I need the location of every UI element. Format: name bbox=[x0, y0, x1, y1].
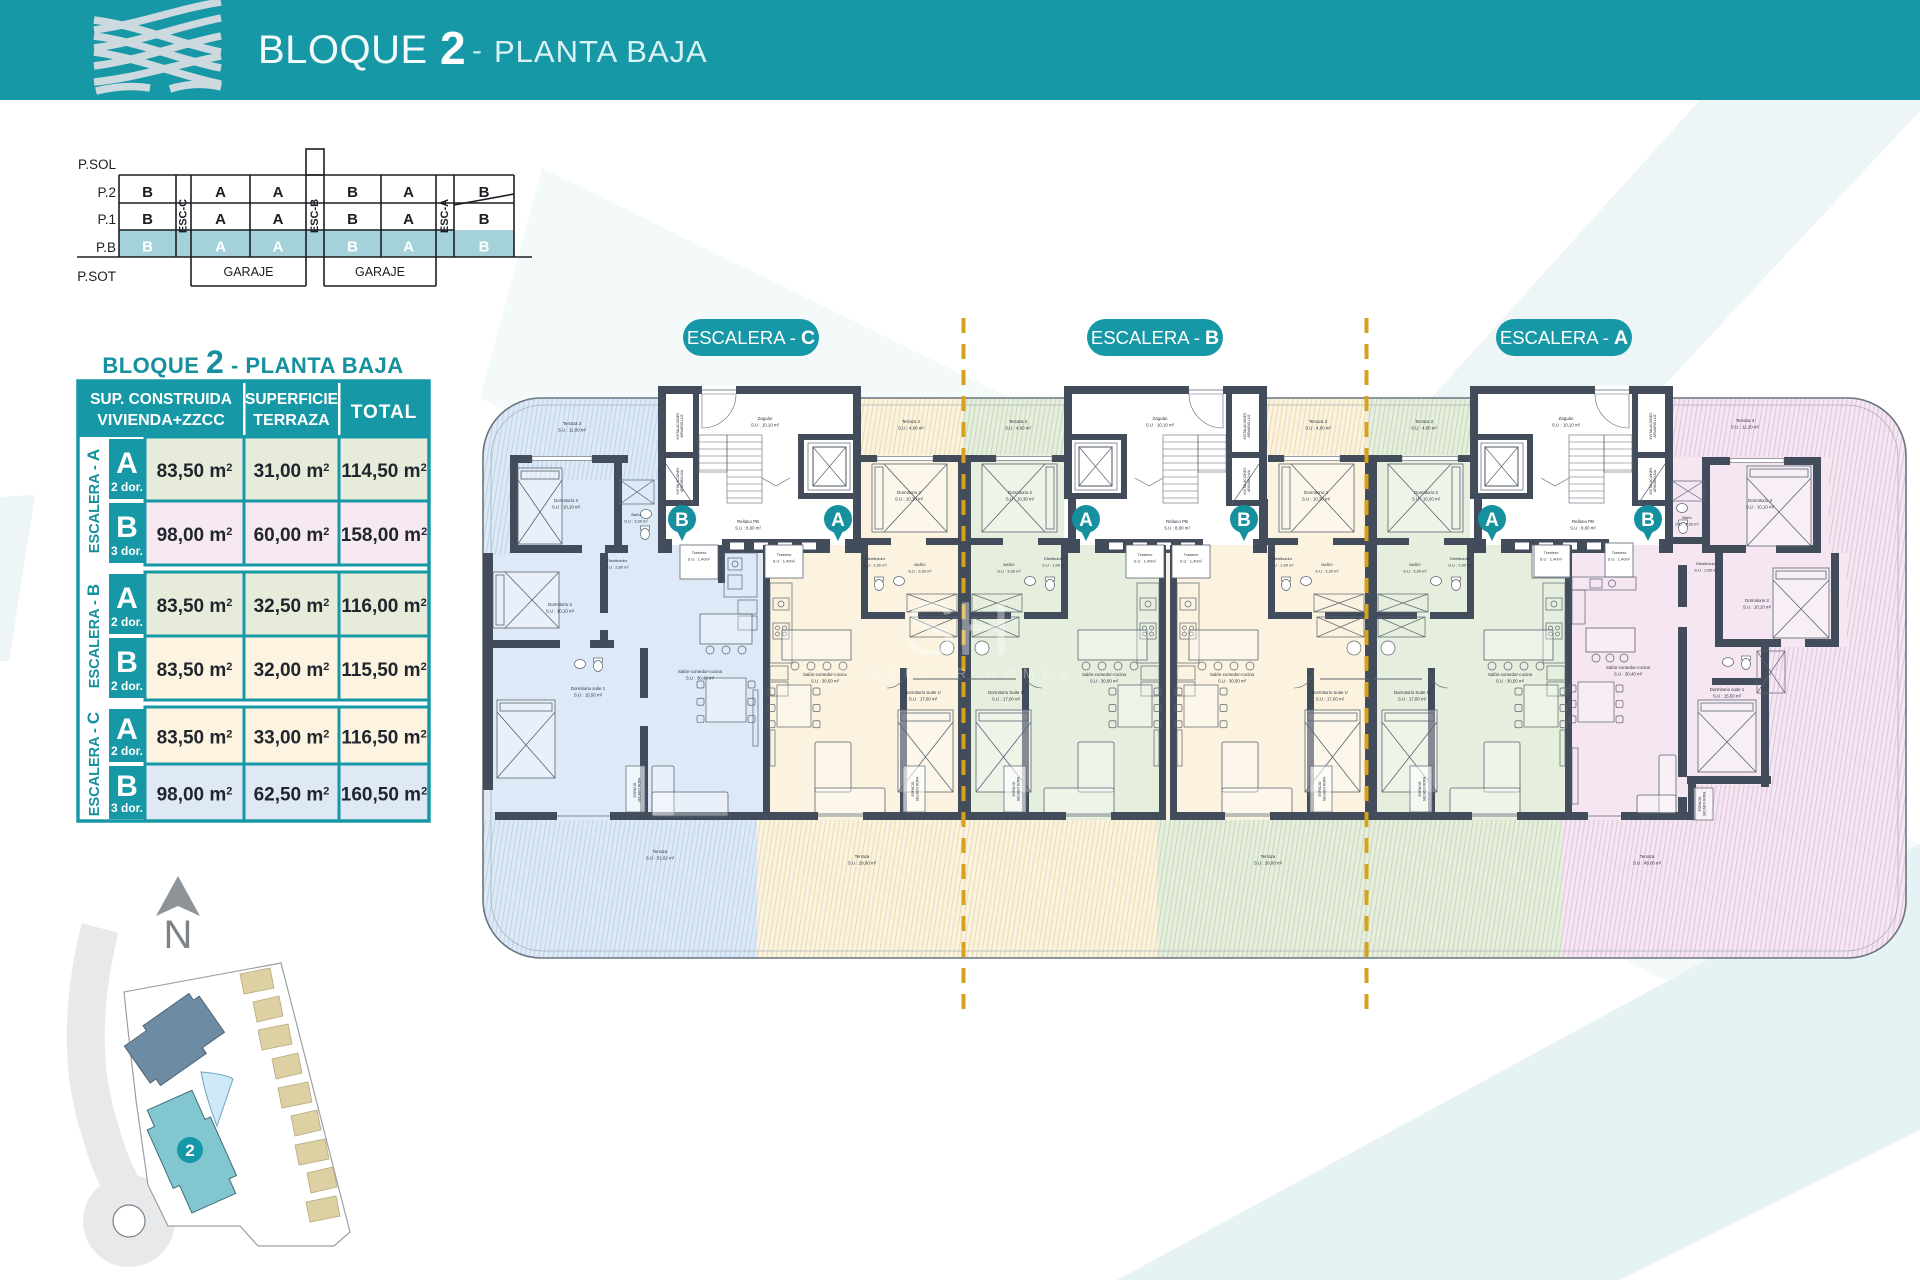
svg-text:Terraza 3: Terraza 3 bbox=[1736, 418, 1755, 423]
svg-text:S.U : 3,30 m²: S.U : 3,30 m² bbox=[1675, 522, 1699, 527]
svg-text:Terraza: Terraza bbox=[1640, 854, 1655, 859]
svg-text:A: A bbox=[273, 184, 284, 201]
svg-text:P.B: P.B bbox=[96, 240, 116, 255]
svg-text:Distribuidor: Distribuidor bbox=[1450, 556, 1471, 561]
svg-text:SECADO ROPA: SECADO ROPA bbox=[638, 777, 642, 802]
svg-text:SECADO ROPA: SECADO ROPA bbox=[1703, 791, 1707, 816]
svg-text:2 dor.: 2 dor. bbox=[111, 480, 143, 494]
svg-text:S.U : 3,30 m²: S.U : 3,30 m² bbox=[624, 519, 648, 524]
svg-text:2 dor.: 2 dor. bbox=[111, 615, 143, 629]
svg-text:Zaguán: Zaguán bbox=[758, 416, 773, 421]
svg-text:Dormitorio 2: Dormitorio 2 bbox=[1008, 490, 1032, 495]
svg-text:S.U : 17,00 m²: S.U : 17,00 m² bbox=[909, 697, 938, 702]
svg-text:S.U : 1,40m²: S.U : 1,40m² bbox=[1134, 559, 1157, 564]
svg-text:P.SOT: P.SOT bbox=[77, 269, 116, 284]
svg-text:B: B bbox=[142, 211, 153, 228]
svg-text:S.U : 2,80 m²: S.U : 2,80 m² bbox=[605, 565, 629, 570]
svg-text:Dormitorio 2: Dormitorio 2 bbox=[548, 602, 572, 607]
svg-text:Dormitorio Suite 1ᵗ: Dormitorio Suite 1ᵗ bbox=[905, 690, 941, 695]
svg-text:A: A bbox=[116, 447, 138, 480]
svg-text:B: B bbox=[142, 184, 153, 201]
svg-text:ESCALERA - A: ESCALERA - A bbox=[1500, 327, 1628, 349]
svg-text:S.U : 10,10 m²: S.U : 10,10 m² bbox=[546, 609, 575, 614]
svg-text:SH: SH bbox=[905, 587, 1011, 672]
svg-text:S.U : 10,10 m²: S.U : 10,10 m² bbox=[1146, 423, 1175, 428]
svg-text:3 dor.: 3 dor. bbox=[111, 544, 143, 558]
svg-text:33,00 m2: 33,00 m2 bbox=[254, 728, 330, 749]
svg-text:S.U : 8,00 m²: S.U : 8,00 m² bbox=[1570, 526, 1596, 531]
svg-text:S.U : 3,30 m²: S.U : 3,30 m² bbox=[1403, 569, 1427, 574]
svg-text:VIVIENDA+ZZCC: VIVIENDA+ZZCC bbox=[97, 412, 225, 429]
svg-text:ESCALERA - B: ESCALERA - B bbox=[1091, 327, 1219, 349]
svg-text:ESC-A: ESC-A bbox=[439, 199, 451, 233]
svg-text:Salón-comedor-cocina: Salón-comedor-cocina bbox=[1606, 665, 1650, 670]
svg-text:ARMARIO A/A: ARMARIO A/A bbox=[680, 469, 684, 492]
svg-text:SUPERFICIE: SUPERFICIE bbox=[245, 391, 338, 408]
svg-text:Dormitorio 2: Dormitorio 2 bbox=[1304, 490, 1328, 495]
svg-text:S.U : 30,50 m²: S.U : 30,50 m² bbox=[1218, 679, 1247, 684]
svg-text:32,50 m2: 32,50 m2 bbox=[254, 596, 330, 617]
svg-text:SINGULAR HOMES: SINGULAR HOMES bbox=[839, 665, 1078, 681]
svg-text:P.1: P.1 bbox=[97, 212, 116, 227]
svg-text:114,50 m2: 114,50 m2 bbox=[341, 461, 426, 482]
svg-text:S.U : 10,10 m²: S.U : 10,10 m² bbox=[552, 505, 581, 510]
svg-text:ESC-C: ESC-C bbox=[177, 199, 189, 233]
svg-text:S.U : 10,10 m²: S.U : 10,10 m² bbox=[1552, 423, 1581, 428]
svg-text:ESCALERA - B: ESCALERA - B bbox=[84, 584, 103, 688]
svg-text:A: A bbox=[116, 582, 138, 615]
svg-text:Dormitorio 3: Dormitorio 3 bbox=[554, 498, 578, 503]
svg-text:Distribuidor: Distribuidor bbox=[1696, 561, 1717, 566]
svg-text:ARMARIO A/A: ARMARIO A/A bbox=[1653, 469, 1657, 492]
svg-text:115,50 m2: 115,50 m2 bbox=[341, 660, 426, 681]
svg-text:ESPACIO: ESPACIO bbox=[911, 781, 915, 796]
svg-text:Terraza: Terraza bbox=[653, 849, 668, 854]
svg-text:S.U : 4,00 m²: S.U : 4,00 m² bbox=[1005, 426, 1031, 431]
svg-text:S.U : 10,10 m²: S.U : 10,10 m² bbox=[751, 423, 780, 428]
svg-text:S.U : 1,40m²: S.U : 1,40m² bbox=[773, 559, 796, 564]
svg-text:S.U : 10,10 m²: S.U : 10,10 m² bbox=[1746, 505, 1775, 510]
svg-text:S.U : 3,30 m²: S.U : 3,30 m² bbox=[1315, 569, 1339, 574]
svg-text:S.U : 1,90 m²: S.U : 1,90 m² bbox=[863, 563, 887, 568]
svg-text:S.U : 28,00 m²: S.U : 28,00 m² bbox=[1254, 861, 1283, 866]
svg-text:S.U : 3,30 m²: S.U : 3,30 m² bbox=[908, 569, 932, 574]
svg-text:S.U : 2,60 m²: S.U : 2,60 m² bbox=[1694, 568, 1718, 573]
svg-text:Terraza 2: Terraza 2 bbox=[1309, 419, 1328, 424]
svg-text:Salón-comedor-cocina: Salón-comedor-cocina bbox=[1082, 672, 1126, 677]
svg-text:B: B bbox=[142, 239, 153, 256]
svg-text:S.U : 1,40m²: S.U : 1,40m² bbox=[1180, 559, 1203, 564]
svg-text:S.U : 11,20 m²: S.U : 11,20 m² bbox=[1731, 425, 1760, 430]
svg-text:B: B bbox=[1641, 510, 1655, 531]
svg-text:A: A bbox=[273, 239, 284, 256]
svg-text:S.U : 29,00 m²: S.U : 29,00 m² bbox=[848, 861, 877, 866]
svg-text:Terraza: Terraza bbox=[855, 854, 870, 859]
svg-text:Dormitorio 2: Dormitorio 2 bbox=[897, 490, 921, 495]
svg-text:2: 2 bbox=[185, 1141, 194, 1160]
svg-text:ESPACIO: ESPACIO bbox=[1698, 796, 1702, 811]
svg-text:83,50 m2: 83,50 m2 bbox=[157, 596, 233, 617]
svg-text:-: - bbox=[472, 34, 482, 67]
svg-text:B: B bbox=[116, 511, 138, 544]
svg-text:ESPACIO: ESPACIO bbox=[1318, 781, 1322, 796]
svg-text:A: A bbox=[403, 184, 414, 201]
svg-text:Terraza 2: Terraza 2 bbox=[1415, 419, 1434, 424]
svg-text:Distribuidor: Distribuidor bbox=[1044, 556, 1065, 561]
svg-text:S.U : 30,40 m²: S.U : 30,40 m² bbox=[1614, 672, 1643, 677]
svg-text:A: A bbox=[403, 211, 414, 228]
svg-text:S.U : 30,50 m²: S.U : 30,50 m² bbox=[1496, 679, 1525, 684]
svg-text:Trastero: Trastero bbox=[1544, 550, 1560, 555]
svg-text:S.U : 49,00 m²: S.U : 49,00 m² bbox=[1633, 861, 1662, 866]
svg-text:ESCALERA - A: ESCALERA - A bbox=[84, 449, 103, 553]
svg-text:S.U : 1,40m²: S.U : 1,40m² bbox=[1540, 557, 1563, 562]
svg-text:S.U : 4,00 m²: S.U : 4,00 m² bbox=[898, 426, 924, 431]
svg-text:S.U : 8,00 m²: S.U : 8,00 m² bbox=[735, 526, 761, 531]
svg-text:ARMARIO A/A: ARMARIO A/A bbox=[1247, 469, 1251, 492]
svg-text:B: B bbox=[675, 510, 689, 531]
svg-text:A: A bbox=[1485, 510, 1499, 531]
svg-text:Salón-comedor-cocina: Salón-comedor-cocina bbox=[1488, 672, 1532, 677]
svg-text:A: A bbox=[215, 184, 226, 201]
svg-text:98,00 m2: 98,00 m2 bbox=[157, 785, 233, 806]
svg-text:3 dor.: 3 dor. bbox=[111, 801, 143, 815]
svg-text:B: B bbox=[347, 239, 358, 256]
svg-text:P.SOL: P.SOL bbox=[78, 157, 117, 172]
svg-text:A: A bbox=[116, 713, 138, 746]
svg-text:Terraza: Terraza bbox=[1261, 854, 1276, 859]
svg-text:S.U : 1,40m²: S.U : 1,40m² bbox=[1608, 557, 1631, 562]
svg-text:Salón-comedor-cocina: Salón-comedor-cocina bbox=[1210, 672, 1254, 677]
svg-text:B: B bbox=[116, 770, 138, 803]
svg-text:Dormitorio suite 1: Dormitorio suite 1 bbox=[571, 686, 606, 691]
svg-text:83,50 m2: 83,50 m2 bbox=[157, 728, 233, 749]
svg-text:A: A bbox=[831, 510, 845, 531]
svg-text:ARMARIO LUZ: ARMARIO LUZ bbox=[1653, 414, 1657, 437]
svg-text:Dormitorio suite 1: Dormitorio suite 1 bbox=[1710, 687, 1745, 692]
svg-text:Trastero: Trastero bbox=[1612, 550, 1628, 555]
svg-text:31,00 m2: 31,00 m2 bbox=[254, 461, 330, 482]
svg-text:S.U : 17,00 m²: S.U : 17,00 m² bbox=[1398, 697, 1427, 702]
svg-text:B: B bbox=[479, 239, 490, 256]
svg-text:S.U : 4,00 m²: S.U : 4,00 m² bbox=[1411, 426, 1437, 431]
svg-text:Trastero: Trastero bbox=[777, 552, 793, 557]
svg-text:S.U : 17,00 m²: S.U : 17,00 m² bbox=[992, 697, 1021, 702]
svg-text:GARAJE: GARAJE bbox=[355, 265, 405, 279]
svg-text:S.U : 3,30 m²: S.U : 3,30 m² bbox=[997, 569, 1021, 574]
svg-text:Distribuidor: Distribuidor bbox=[607, 558, 628, 563]
svg-text:BAÑO: BAÑO bbox=[1321, 562, 1332, 567]
svg-text:GARAJE: GARAJE bbox=[223, 265, 273, 279]
svg-text:Terraza 2: Terraza 2 bbox=[902, 419, 921, 424]
svg-text:A: A bbox=[215, 239, 226, 256]
svg-text:Rellano PB: Rellano PB bbox=[1166, 519, 1188, 524]
svg-text:62,50 m2: 62,50 m2 bbox=[254, 785, 330, 806]
svg-text:ESC-B: ESC-B bbox=[309, 199, 321, 233]
svg-text:158,00 m2: 158,00 m2 bbox=[341, 525, 427, 546]
svg-text:ESPACIO: ESPACIO bbox=[1418, 781, 1422, 796]
svg-text:S.U : 10,30 m²: S.U : 10,30 m² bbox=[895, 497, 924, 502]
svg-text:Zaguán: Zaguán bbox=[1153, 416, 1168, 421]
svg-text:98,00 m2: 98,00 m2 bbox=[157, 525, 233, 546]
svg-text:Terraza 2: Terraza 2 bbox=[1009, 419, 1028, 424]
svg-text:SECADO ROPA: SECADO ROPA bbox=[1423, 776, 1427, 801]
svg-text:S.U : 1,90 m²: S.U : 1,90 m² bbox=[1042, 563, 1066, 568]
svg-text:Rellano PB: Rellano PB bbox=[1572, 519, 1594, 524]
svg-text:Distribuidor: Distribuidor bbox=[1272, 556, 1293, 561]
svg-text:Distribuidor: Distribuidor bbox=[865, 556, 886, 561]
svg-text:32,00 m2: 32,00 m2 bbox=[254, 660, 330, 681]
svg-text:BAÑO: BAÑO bbox=[1409, 562, 1420, 567]
svg-text:Trastero: Trastero bbox=[1138, 552, 1154, 557]
svg-text:S.U : 10,30 m²: S.U : 10,30 m² bbox=[1302, 497, 1331, 502]
svg-text:S.U : 51,02 m²: S.U : 51,02 m² bbox=[646, 856, 675, 861]
svg-text:ARMARIO LUZ: ARMARIO LUZ bbox=[680, 414, 684, 437]
svg-text:2 dor.: 2 dor. bbox=[111, 744, 143, 758]
svg-text:S.U : 1,90 m²: S.U : 1,90 m² bbox=[1270, 563, 1294, 568]
svg-text:B: B bbox=[1237, 510, 1251, 531]
svg-text:Baño: Baño bbox=[631, 512, 641, 517]
svg-text:S.U : 15,50 m²: S.U : 15,50 m² bbox=[1713, 694, 1742, 699]
svg-text:116,00 m2: 116,00 m2 bbox=[341, 596, 426, 617]
svg-text:A: A bbox=[273, 211, 284, 228]
svg-text:BLOQUE: BLOQUE bbox=[258, 28, 428, 72]
svg-text:Terraza 2: Terraza 2 bbox=[563, 421, 582, 426]
svg-text:B: B bbox=[347, 184, 358, 201]
svg-text:Salón-comedor-cocina: Salón-comedor-cocina bbox=[678, 669, 722, 674]
svg-text:116,50 m2: 116,50 m2 bbox=[341, 728, 426, 749]
svg-text:B: B bbox=[479, 184, 490, 201]
svg-text:S.U : 30,40 m²: S.U : 30,40 m² bbox=[686, 676, 715, 681]
svg-text:160,50 m2: 160,50 m2 bbox=[341, 785, 427, 806]
svg-text:P.2: P.2 bbox=[97, 185, 116, 200]
svg-text:S.U : 8,00 m²: S.U : 8,00 m² bbox=[1164, 526, 1190, 531]
svg-text:TOTAL: TOTAL bbox=[351, 402, 418, 423]
svg-text:S.U : 30,50 m²: S.U : 30,50 m² bbox=[811, 679, 840, 684]
svg-text:Baño: Baño bbox=[1682, 515, 1692, 520]
svg-text:B: B bbox=[116, 646, 138, 679]
svg-text:S.U : 17,00 m²: S.U : 17,00 m² bbox=[1316, 697, 1345, 702]
svg-text:S.U : 30,50 m²: S.U : 30,50 m² bbox=[1090, 679, 1119, 684]
svg-text:N: N bbox=[164, 913, 193, 957]
svg-text:SECADO ROPA: SECADO ROPA bbox=[1323, 776, 1327, 801]
svg-text:S.U : 4,00 m²: S.U : 4,00 m² bbox=[1305, 426, 1331, 431]
svg-text:S.U : 10,10 m²: S.U : 10,10 m² bbox=[1743, 605, 1772, 610]
svg-text:S.U : 10,30 m²: S.U : 10,30 m² bbox=[1412, 497, 1441, 502]
svg-text:Zaguán: Zaguán bbox=[1559, 416, 1574, 421]
svg-text:S.U : 15,50 m²: S.U : 15,50 m² bbox=[574, 693, 603, 698]
svg-text:2 dor.: 2 dor. bbox=[111, 679, 143, 693]
svg-text:2: 2 bbox=[440, 22, 466, 74]
svg-text:Dormitorio 3: Dormitorio 3 bbox=[1748, 498, 1772, 503]
svg-text:A: A bbox=[215, 211, 226, 228]
svg-text:S.U : 1,90 m²: S.U : 1,90 m² bbox=[1448, 563, 1472, 568]
svg-text:ESPACIO: ESPACIO bbox=[633, 782, 637, 797]
svg-text:PLANTA BAJA: PLANTA BAJA bbox=[494, 34, 708, 69]
svg-text:B: B bbox=[479, 211, 490, 228]
svg-text:S.U : 11,00 m²: S.U : 11,00 m² bbox=[558, 428, 587, 433]
svg-text:SECADO ROPA: SECADO ROPA bbox=[916, 776, 920, 801]
svg-text:A: A bbox=[1079, 510, 1093, 531]
svg-text:Rellano PB: Rellano PB bbox=[737, 519, 759, 524]
svg-text:BAÑO: BAÑO bbox=[914, 562, 925, 567]
svg-text:A: A bbox=[403, 239, 414, 256]
svg-text:ESCALERA - C: ESCALERA - C bbox=[84, 712, 103, 816]
svg-text:Dormitorio Suite 1ᵗ: Dormitorio Suite 1ᵗ bbox=[1312, 690, 1348, 695]
svg-text:Dormitorio Suite 1ᵗ: Dormitorio Suite 1ᵗ bbox=[988, 690, 1024, 695]
svg-text:Dormitorio Suite 1ᵗ: Dormitorio Suite 1ᵗ bbox=[1394, 690, 1430, 695]
svg-text:ARMARIO LUZ: ARMARIO LUZ bbox=[1247, 414, 1251, 437]
svg-text:ESPACIO: ESPACIO bbox=[1012, 781, 1016, 796]
svg-text:TERRAZA: TERRAZA bbox=[253, 412, 330, 429]
svg-text:Trastero: Trastero bbox=[692, 550, 708, 555]
svg-text:ESCALERA - C: ESCALERA - C bbox=[687, 327, 815, 349]
svg-text:SECADO ROPA: SECADO ROPA bbox=[1017, 776, 1021, 801]
svg-text:BAÑO: BAÑO bbox=[1003, 562, 1014, 567]
svg-text:Dormitorio 2: Dormitorio 2 bbox=[1745, 598, 1769, 603]
svg-text:B: B bbox=[347, 211, 358, 228]
svg-text:Trastero: Trastero bbox=[1184, 552, 1200, 557]
svg-text:83,50 m2: 83,50 m2 bbox=[157, 660, 233, 681]
svg-text:SUP. CONSTRUIDA: SUP. CONSTRUIDA bbox=[90, 391, 232, 408]
svg-text:S.U : 1,40m²: S.U : 1,40m² bbox=[688, 557, 711, 562]
svg-text:60,00 m2: 60,00 m2 bbox=[254, 525, 330, 546]
svg-text:83,50 m2: 83,50 m2 bbox=[157, 461, 233, 482]
svg-text:S.U : 10,30 m²: S.U : 10,30 m² bbox=[1006, 497, 1035, 502]
svg-text:Dormitorio 2: Dormitorio 2 bbox=[1414, 490, 1438, 495]
